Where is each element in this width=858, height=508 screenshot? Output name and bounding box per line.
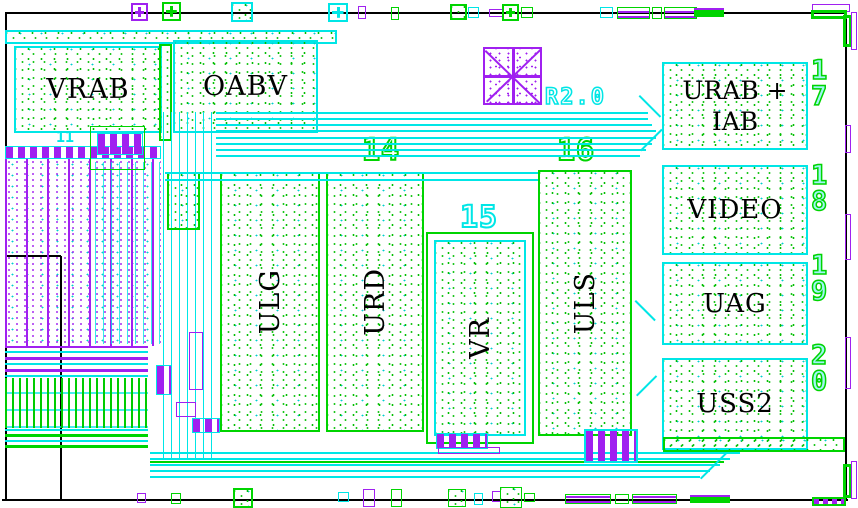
pad-number-18: 18 bbox=[811, 163, 830, 215]
block-ulg[interactable]: ULG bbox=[220, 172, 320, 432]
block-uls[interactable]: ULS bbox=[538, 170, 632, 436]
block-vrab[interactable]: VRAB bbox=[14, 46, 162, 133]
block-vrab-label: VRAB bbox=[46, 74, 129, 105]
bus-line bbox=[150, 470, 710, 472]
top-box-green-2[interactable] bbox=[652, 7, 662, 19]
alignment-cross-green-2[interactable] bbox=[502, 4, 519, 21]
pad-number-20: 20 bbox=[811, 343, 830, 395]
bottom-tick-green[interactable] bbox=[171, 493, 181, 504]
top-bar-group-2[interactable] bbox=[664, 7, 697, 19]
bus-line bbox=[216, 143, 652, 145]
contact-box-3 bbox=[176, 402, 196, 417]
bus-diagonal bbox=[636, 375, 657, 396]
uls-contacts bbox=[584, 429, 638, 463]
block-uss2-label: USS2 bbox=[696, 389, 774, 419]
top-tick-cyan[interactable] bbox=[468, 7, 479, 18]
contact-box-1 bbox=[189, 332, 203, 390]
edge-pad[interactable] bbox=[845, 125, 851, 153]
bottom-bar-solid-green[interactable] bbox=[690, 495, 730, 503]
corner-bar-purple-v[interactable] bbox=[851, 12, 857, 50]
top-tick-green[interactable] bbox=[391, 7, 399, 20]
vr-contact-bar bbox=[438, 447, 500, 454]
bus-number-15: 15 bbox=[460, 200, 498, 235]
bottom-tick-purple[interactable] bbox=[137, 493, 146, 503]
top-bar-group[interactable] bbox=[617, 7, 650, 19]
pad-number-17: 17 bbox=[811, 58, 830, 110]
top-tick-cyan-2[interactable] bbox=[600, 7, 613, 18]
bottom-box-green-3[interactable] bbox=[615, 494, 629, 504]
bus-line bbox=[150, 464, 720, 466]
top-tick-purple[interactable] bbox=[358, 6, 366, 19]
block-urab-iab[interactable]: URAB + IAB bbox=[662, 62, 808, 150]
bus-number-11: 11 bbox=[56, 128, 74, 146]
corner-bar-purple-v2[interactable] bbox=[851, 461, 857, 499]
bottom-box-green-2[interactable] bbox=[524, 493, 535, 502]
block-urab-iab-line1: URAB + bbox=[682, 75, 787, 106]
alignment-cross-cyan[interactable] bbox=[328, 3, 348, 22]
corner-bar-green-h[interactable] bbox=[811, 10, 847, 19]
block-video[interactable]: VIDEO bbox=[662, 165, 808, 255]
block-oabv-label: OABV bbox=[203, 71, 288, 102]
bus-line bbox=[216, 124, 652, 126]
bus-diagonal bbox=[635, 300, 656, 321]
edge-pad[interactable] bbox=[845, 214, 851, 260]
top-pad-green[interactable] bbox=[450, 4, 467, 20]
layout-canvas: VRAB OABV R2.0 URAB + IAB VIDEO UAG USS2… bbox=[0, 0, 858, 508]
edge-pad[interactable] bbox=[845, 337, 851, 389]
cell-rows-bottom bbox=[5, 428, 148, 448]
bus-line bbox=[216, 137, 656, 139]
bus-line bbox=[216, 130, 656, 132]
bus-diagonal bbox=[639, 95, 662, 118]
ram-array-cyan-cols bbox=[95, 162, 161, 344]
revision-label: R2.0 bbox=[545, 85, 606, 110]
bus-line bbox=[216, 155, 640, 157]
bottom-bar-group[interactable] bbox=[565, 494, 611, 504]
bottom-pad-green-3[interactable] bbox=[500, 487, 522, 508]
contact-box-4 bbox=[192, 418, 220, 433]
block-urd[interactable]: URD bbox=[326, 172, 424, 432]
bottom-box-green[interactable] bbox=[391, 489, 402, 507]
bus-line bbox=[216, 112, 648, 114]
green-bus-band bbox=[663, 437, 845, 452]
bus-line bbox=[216, 149, 646, 151]
bottom-pad-green-2[interactable] bbox=[448, 489, 466, 507]
top-box-green[interactable] bbox=[521, 7, 533, 18]
bottom-pad-green[interactable] bbox=[233, 488, 253, 508]
bus-line bbox=[150, 458, 730, 460]
block-uag[interactable]: UAG bbox=[662, 262, 808, 345]
top-bar-solid-green[interactable] bbox=[694, 8, 724, 17]
block-ulg-label: ULG bbox=[255, 269, 286, 334]
block-uag-label: UAG bbox=[703, 289, 767, 319]
pad-number-19: 19 bbox=[811, 253, 830, 305]
block-uls-label: ULS bbox=[570, 272, 601, 334]
bottom-tick-cyan[interactable] bbox=[338, 492, 349, 502]
block-video-label: VIDEO bbox=[687, 195, 782, 225]
top-pad-cyan[interactable] bbox=[231, 2, 253, 22]
block-vr-label: VR bbox=[465, 317, 496, 359]
bottom-box-purple[interactable] bbox=[363, 489, 375, 507]
contact-box-2 bbox=[156, 365, 172, 395]
bottom-tick-cyan-2[interactable] bbox=[474, 493, 483, 505]
bus-band-mid bbox=[165, 172, 538, 181]
decoder-array-green bbox=[5, 378, 148, 428]
block-urab-iab-line2: IAB bbox=[712, 106, 758, 137]
small-cell-row bbox=[97, 133, 143, 155]
bus-line bbox=[216, 118, 648, 120]
bottom-bar-group-2[interactable] bbox=[632, 494, 677, 504]
block-vr-inner: VR bbox=[434, 240, 526, 436]
alignment-cross-green[interactable] bbox=[162, 2, 181, 21]
alignment-mark[interactable] bbox=[483, 47, 542, 105]
block-urd-label: URD bbox=[360, 268, 391, 336]
bus-diagonal bbox=[640, 129, 663, 152]
bottom-corner-bar[interactable] bbox=[812, 497, 846, 506]
bus-line bbox=[150, 476, 700, 478]
block-vr[interactable]: VR bbox=[426, 232, 534, 444]
alignment-cross-purple[interactable] bbox=[131, 3, 148, 21]
cell-rows-mid bbox=[5, 346, 148, 377]
